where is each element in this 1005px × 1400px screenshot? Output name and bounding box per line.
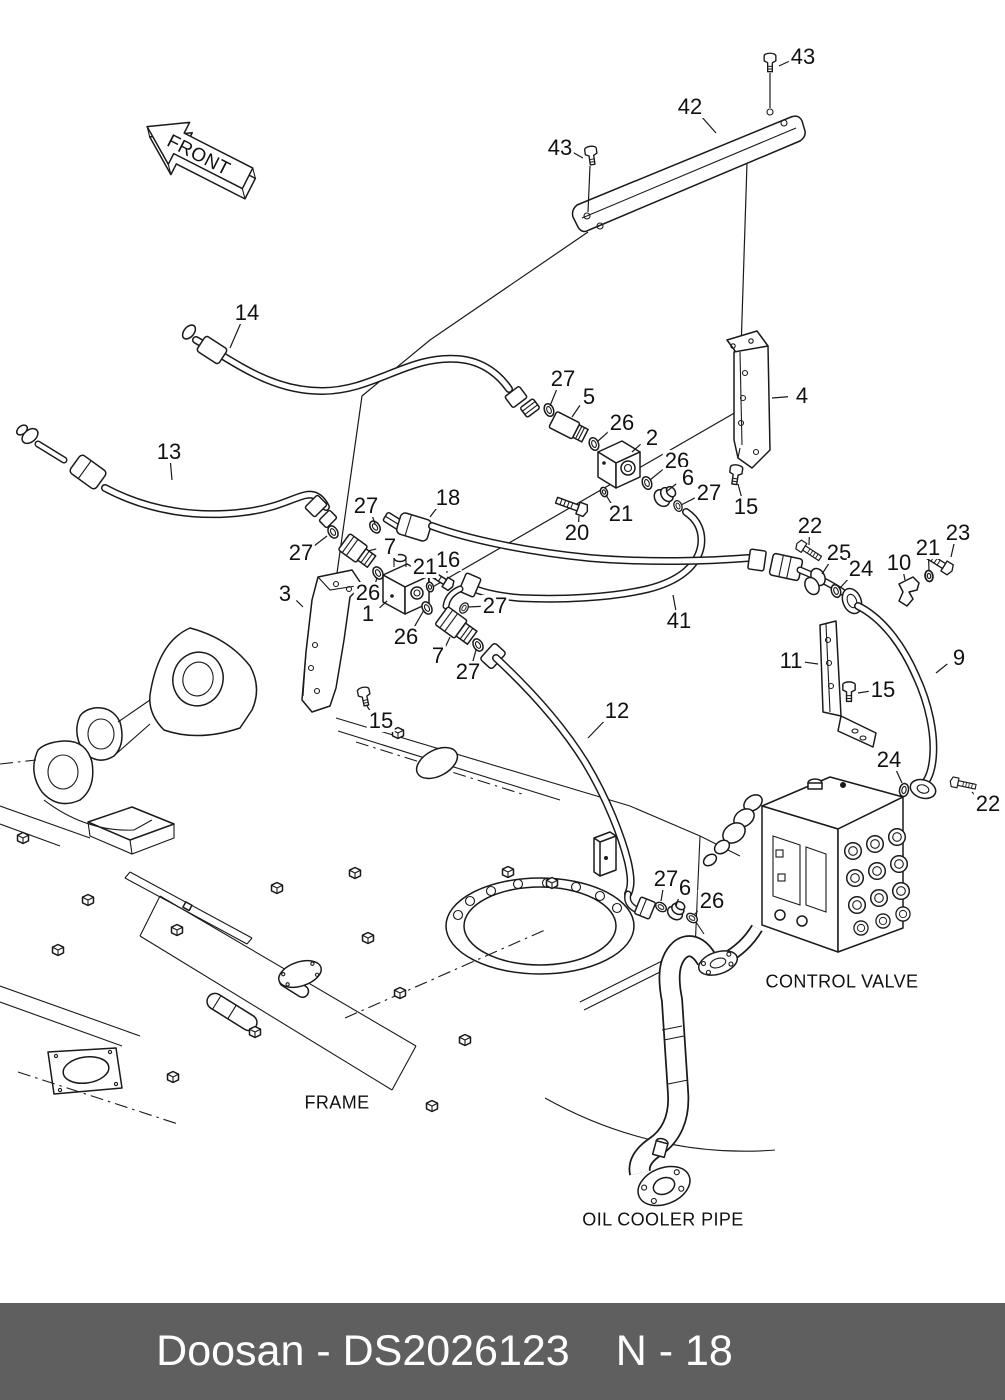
callout-13: 13 — [155, 441, 183, 463]
callout-7: 7 — [382, 536, 398, 558]
callout-11: 11 — [778, 650, 805, 672]
callout-21: 21 — [411, 556, 439, 578]
callout-1: 1 — [360, 603, 376, 625]
callout-7: 7 — [430, 645, 446, 667]
control-valve-label: CONTROL VALVE — [766, 972, 919, 993]
callout-6: 6 — [677, 877, 693, 899]
callout-layer: 4342431427542621326627182715212223207212… — [0, 0, 1005, 1303]
callout-27: 27 — [481, 595, 509, 617]
oil-cooler-pipe-label: OIL COOLER PIPE — [582, 1210, 743, 1231]
callout-26: 26 — [608, 412, 636, 434]
callout-21: 21 — [914, 537, 942, 559]
callout-12: 12 — [603, 700, 631, 722]
callout-26: 26 — [392, 626, 420, 648]
callout-24: 24 — [875, 749, 903, 771]
footer-brand-doc: Doosan - DS2026123 — [156, 1327, 570, 1376]
callout-3: 3 — [277, 583, 293, 605]
footer-bar: Doosan - DS2026123 N - 18 — [0, 1303, 1005, 1400]
footer-page-number: N - 18 — [616, 1327, 733, 1376]
callout-22: 22 — [974, 793, 1002, 815]
callout-4: 4 — [794, 385, 810, 407]
callout-27: 27 — [287, 542, 315, 564]
callout-5: 5 — [581, 386, 597, 408]
callout-10: 10 — [885, 552, 913, 574]
callout-43: 43 — [546, 137, 574, 159]
callout-21: 21 — [607, 503, 635, 525]
callout-22: 22 — [796, 515, 824, 537]
callout-15: 15 — [367, 710, 395, 732]
callout-42: 42 — [676, 96, 704, 118]
callout-27: 27 — [695, 482, 723, 504]
callout-15: 15 — [869, 679, 897, 701]
callout-27: 27 — [549, 368, 577, 390]
frame-label: FRAME — [305, 1093, 370, 1114]
callout-18: 18 — [434, 487, 462, 509]
callout-23: 23 — [944, 522, 972, 544]
callout-43: 43 — [789, 46, 817, 68]
callout-24: 24 — [847, 558, 875, 580]
callout-20: 20 — [563, 522, 591, 544]
callout-15: 15 — [732, 496, 760, 518]
callout-9: 9 — [951, 647, 967, 669]
parts-diagram-page: FRONT — [0, 0, 1005, 1400]
callout-27: 27 — [352, 495, 380, 517]
callout-6: 6 — [680, 467, 696, 489]
callout-26: 26 — [698, 890, 726, 912]
callout-14: 14 — [233, 302, 261, 324]
callout-27: 27 — [454, 661, 482, 683]
callout-2: 2 — [644, 427, 660, 449]
callout-41: 41 — [665, 610, 693, 632]
